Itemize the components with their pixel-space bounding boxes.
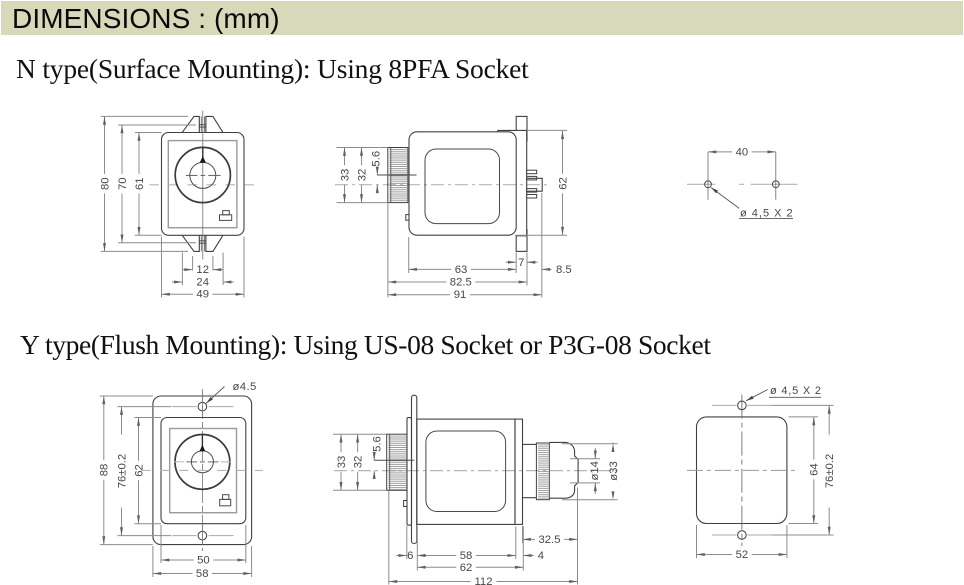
svg-text:50: 50 xyxy=(197,555,210,567)
svg-text:ø 4,5 X 2: ø 4,5 X 2 xyxy=(770,385,822,397)
svg-text:32.5: 32.5 xyxy=(539,534,561,546)
svg-text:112: 112 xyxy=(474,576,492,585)
svg-text:58: 58 xyxy=(196,568,209,580)
svg-text:33: 33 xyxy=(339,169,351,182)
svg-text:ø 4,5 X 2: ø 4,5 X 2 xyxy=(740,207,794,219)
svg-text:70: 70 xyxy=(117,177,129,190)
svg-text:62: 62 xyxy=(133,464,145,477)
svg-text:49: 49 xyxy=(196,289,209,301)
svg-text:61: 61 xyxy=(134,177,146,190)
svg-text:82.5: 82.5 xyxy=(450,277,472,289)
svg-text:76±0.2: 76±0.2 xyxy=(824,454,836,488)
svg-text:7: 7 xyxy=(518,257,524,269)
svg-text:76±0.2: 76±0.2 xyxy=(116,454,128,488)
svg-text:63: 63 xyxy=(455,264,468,276)
svg-text:ø4.5: ø4.5 xyxy=(233,381,257,393)
svg-text:24: 24 xyxy=(196,277,209,289)
svg-text:33: 33 xyxy=(336,456,348,469)
svg-text:62: 62 xyxy=(557,177,569,190)
svg-text:ø14: ø14 xyxy=(589,461,601,480)
svg-text:52: 52 xyxy=(736,549,749,561)
svg-text:6: 6 xyxy=(407,550,413,562)
svg-text:58: 58 xyxy=(460,550,473,562)
svg-text:32: 32 xyxy=(356,169,368,182)
svg-text:64: 64 xyxy=(809,463,821,476)
svg-text:5.6: 5.6 xyxy=(371,151,383,167)
svg-text:91: 91 xyxy=(454,289,467,301)
svg-text:62: 62 xyxy=(460,562,473,574)
svg-text:8.5: 8.5 xyxy=(556,264,572,276)
svg-text:ø33: ø33 xyxy=(608,461,620,480)
svg-text:4: 4 xyxy=(538,550,544,562)
svg-text:32: 32 xyxy=(352,456,364,469)
svg-text:5.6: 5.6 xyxy=(371,436,383,452)
svg-text:40: 40 xyxy=(736,146,749,158)
svg-text:88: 88 xyxy=(99,464,111,477)
svg-text:12: 12 xyxy=(196,264,209,276)
svg-text:80: 80 xyxy=(99,177,111,190)
